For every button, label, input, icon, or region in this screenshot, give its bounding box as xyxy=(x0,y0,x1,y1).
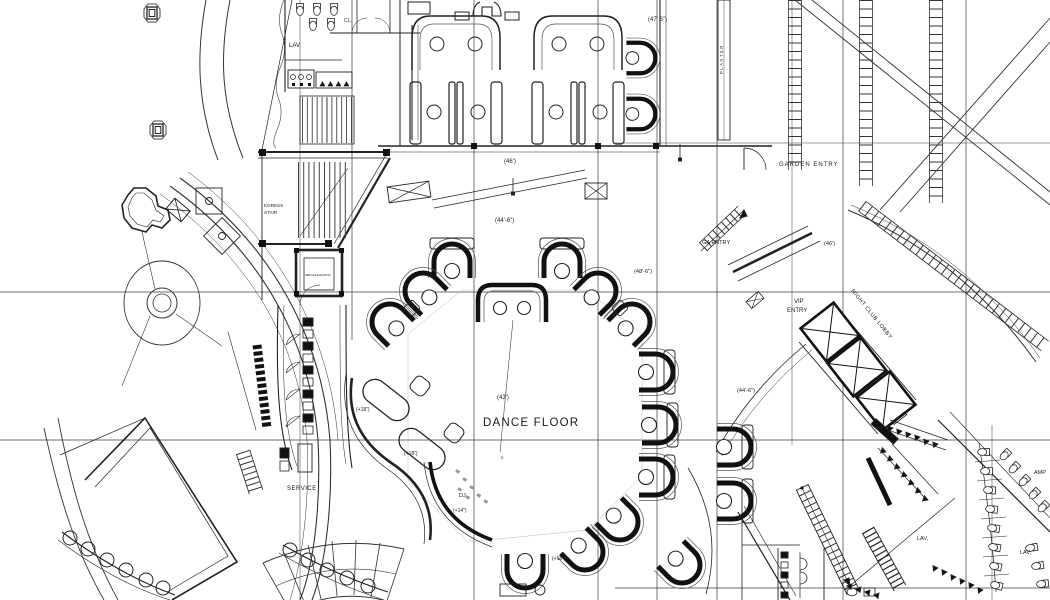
dj-booth xyxy=(345,320,513,547)
level-plus18-b: (+18") xyxy=(404,451,418,457)
column-marker xyxy=(150,121,166,139)
marker-e: E xyxy=(501,455,504,460)
site-ramp-wedge xyxy=(60,332,267,600)
labels: LAV. CL. (47' 6") PLANTER GARDEN ENTRY (… xyxy=(264,17,1046,562)
label-ga-entry: GA ENTRY xyxy=(702,240,730,246)
restroom-top-left xyxy=(262,0,420,150)
label-dance-floor: DANCE FLOOR xyxy=(483,417,579,429)
label-dj: DJ xyxy=(459,493,466,499)
dim-48-6: (48'-6") xyxy=(634,269,652,275)
dim-47-6: (47' 6") xyxy=(648,17,667,23)
dim-44-6-top: (44'-6") xyxy=(495,218,514,224)
rock-planter-blob xyxy=(122,188,190,232)
column-marker xyxy=(144,4,160,22)
radial-stair xyxy=(263,540,404,600)
label-vip-line2: ENTRY xyxy=(787,308,807,314)
dim-46-top: (46') xyxy=(504,159,516,165)
label-amp: AMP xyxy=(1034,470,1046,476)
label-egress-line2: STAIR xyxy=(264,210,278,215)
label-service: SERVICE xyxy=(287,486,317,492)
label-garden-entry: GARDEN ENTRY xyxy=(779,162,839,168)
structural-grid xyxy=(0,0,1050,600)
entry-lobby-zone xyxy=(688,206,917,594)
dim-43: (43') xyxy=(497,395,509,401)
level-plus18-a: (+18") xyxy=(356,407,370,413)
label-planter: PLANTER xyxy=(719,44,724,74)
label-lav-bottom-2: LAV, xyxy=(1020,550,1031,556)
label-lav-bottom-1: LAV, xyxy=(917,536,928,542)
dining-area xyxy=(378,0,772,152)
dim-44-6-mid: (44'-6") xyxy=(737,388,755,394)
dim-46-right: (46') xyxy=(824,241,835,247)
site-curved-walls xyxy=(44,0,338,600)
level-plus18-c: (+18") xyxy=(552,556,566,562)
label-egress-line1: EGRESS xyxy=(264,203,283,208)
floor-plan-drawing: LAV. CL. (47' 6") PLANTER GARDEN ENTRY (… xyxy=(0,0,1050,600)
floor-plan-sheet: LAV. CL. (47' 6") PLANTER GARDEN ENTRY (… xyxy=(0,0,1050,600)
label-cl: CL. xyxy=(344,18,352,24)
label-service-elevator: SERVICE ELEVATOR xyxy=(305,273,331,277)
label-lav-top: LAV. xyxy=(289,43,301,49)
level-plus14: (+14") xyxy=(453,508,467,514)
service-corridor xyxy=(236,285,352,494)
fountain-column xyxy=(122,232,222,386)
label-vip-line1: VIP xyxy=(794,299,804,305)
service-elevator xyxy=(294,248,344,296)
